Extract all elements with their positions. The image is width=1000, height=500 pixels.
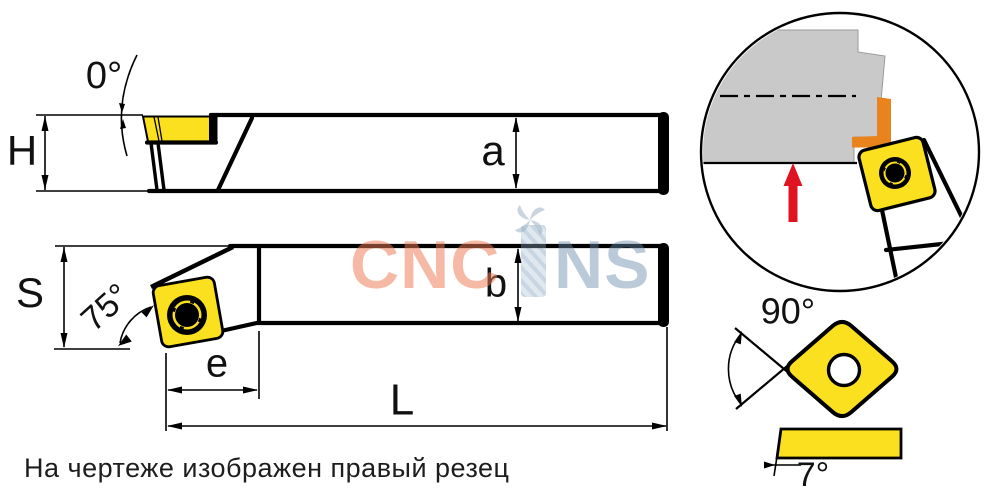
label-clearance-angle: 7° <box>797 456 830 494</box>
arrowhead <box>142 305 154 317</box>
arrowhead <box>243 387 258 394</box>
edge-extension-line <box>735 328 790 374</box>
arrowhead <box>652 423 667 430</box>
arrowhead <box>515 248 522 263</box>
screw-icon <box>879 157 911 189</box>
arrowhead <box>734 331 742 344</box>
arrowhead <box>513 174 520 189</box>
top-view: S 75° e b L <box>16 243 669 431</box>
shank-end-cap <box>658 112 669 195</box>
arrowhead <box>42 175 49 190</box>
label-S: S <box>16 269 44 316</box>
arrowhead <box>167 423 182 430</box>
drawing-canvas: H a 0° S <box>0 0 1000 500</box>
front-leg-line <box>158 143 164 190</box>
arrowhead <box>167 387 182 394</box>
arrowhead <box>61 247 68 262</box>
label-approach-angle: 75° <box>74 276 138 339</box>
pocket-wall <box>209 114 218 144</box>
insert-geometry-view: 90° 7° <box>728 291 901 494</box>
insert-side-profile <box>143 117 213 142</box>
arrowhead <box>515 307 522 322</box>
cutting-detail-circle <box>680 13 979 291</box>
label-L: L <box>390 376 414 425</box>
insert-edge-view <box>777 429 901 458</box>
technical-drawing: H a 0° S <box>0 0 1000 500</box>
label-e: e <box>206 342 228 386</box>
insert-hole <box>829 355 860 386</box>
arrowhead <box>513 117 520 132</box>
arrowhead <box>61 333 68 348</box>
side-view: H a 0° <box>7 55 669 195</box>
arrowhead <box>42 116 49 131</box>
label-rake-angle: 0° <box>86 55 122 97</box>
drawing-note: На чертеже изображен правый резец <box>24 453 510 484</box>
arrowhead <box>764 462 775 469</box>
point-angle-arc <box>728 334 741 404</box>
label-a: a <box>481 127 505 174</box>
label-b: b <box>485 262 507 306</box>
screw-icon <box>167 295 207 335</box>
arrowhead <box>119 103 125 113</box>
shank-end-cap <box>658 243 669 327</box>
head-front-edge <box>218 118 252 190</box>
head-bottom-edge <box>221 323 259 332</box>
label-point-angle: 90° <box>761 291 815 332</box>
front-leg-line <box>151 143 157 190</box>
arrowhead <box>734 394 742 407</box>
label-H: H <box>7 127 37 174</box>
ext-line <box>774 450 778 476</box>
edge-extension-line <box>736 362 792 409</box>
